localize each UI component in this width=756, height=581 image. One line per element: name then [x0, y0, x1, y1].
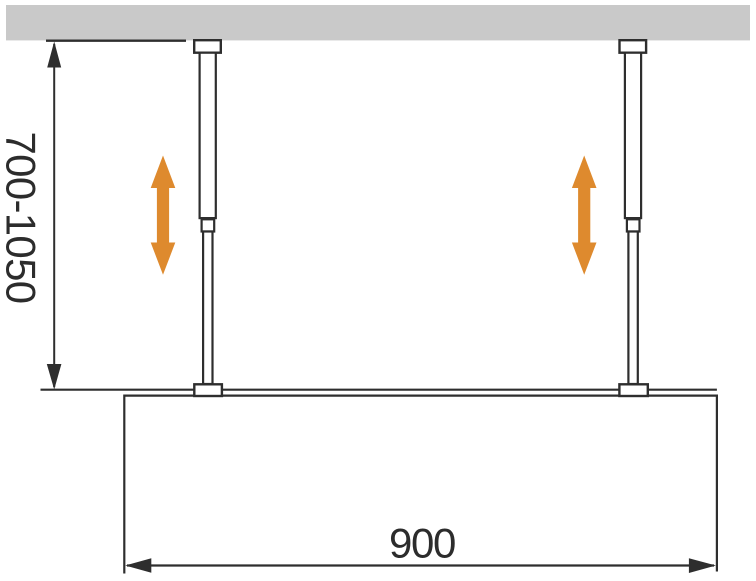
svg-text:700-1050: 700-1050 [0, 132, 44, 304]
svg-text:900: 900 [389, 520, 455, 567]
